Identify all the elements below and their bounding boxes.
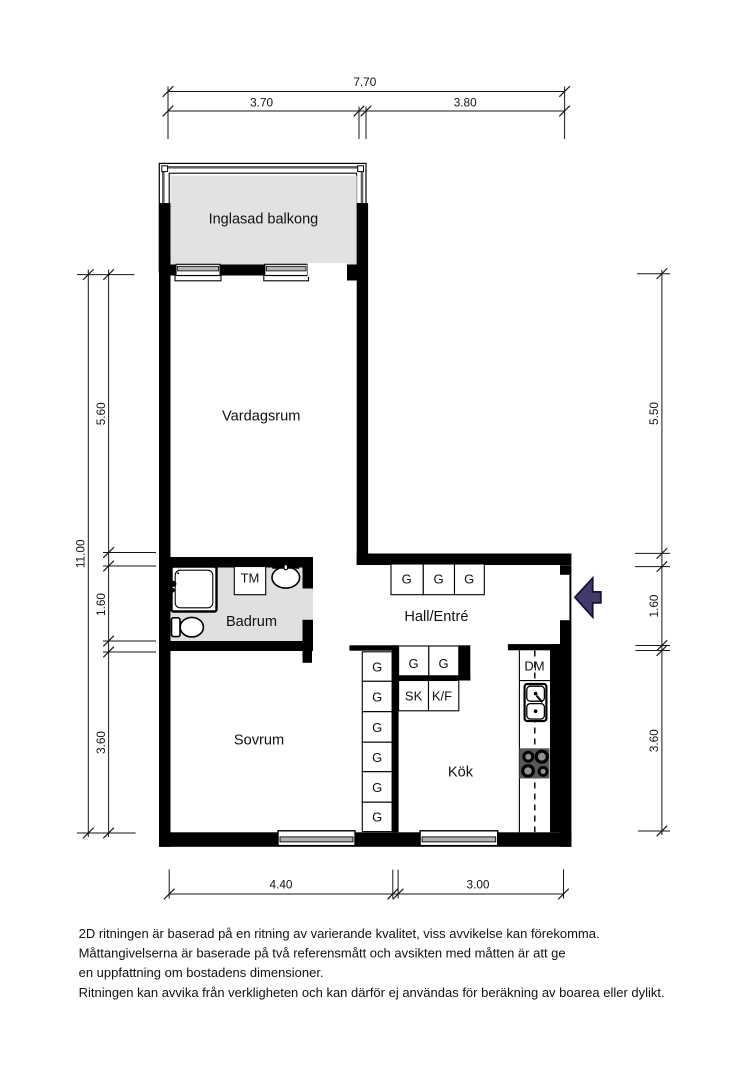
svg-text:Inglasad balkong: Inglasad balkong xyxy=(209,212,319,228)
svg-text:5.50: 5.50 xyxy=(647,402,661,425)
svg-text:3.00: 3.00 xyxy=(467,877,490,891)
svg-text:Badrum: Badrum xyxy=(226,614,277,630)
svg-text:Hall/Entré: Hall/Entré xyxy=(404,609,468,625)
svg-text:5.60: 5.60 xyxy=(94,402,108,425)
svg-text:G: G xyxy=(464,572,474,587)
svg-text:Vardagsrum: Vardagsrum xyxy=(222,408,300,424)
svg-text:G: G xyxy=(372,720,382,735)
svg-text:DM: DM xyxy=(524,658,544,673)
svg-text:3.70: 3.70 xyxy=(250,96,273,110)
svg-text:Kök: Kök xyxy=(448,765,474,781)
svg-text:G: G xyxy=(402,572,412,587)
svg-text:2D ritningen är baserad på en: 2D ritningen är baserad på en ritning av… xyxy=(79,926,600,941)
svg-text:G: G xyxy=(372,750,382,765)
svg-text:Ritningen kan avvika från verk: Ritningen kan avvika från verkligheten o… xyxy=(79,985,665,1000)
svg-text:G: G xyxy=(372,659,382,674)
svg-text:3.60: 3.60 xyxy=(647,729,661,752)
svg-text:G: G xyxy=(372,780,382,795)
svg-text:7.70: 7.70 xyxy=(353,75,376,89)
svg-text:Måttangivelserna är baserade p: Måttangivelserna är baserade på två refe… xyxy=(79,946,566,961)
svg-text:G: G xyxy=(439,656,449,671)
svg-text:en uppfattning om bostadens di: en uppfattning om bostadens dimensioner. xyxy=(79,965,324,980)
svg-text:4.40: 4.40 xyxy=(270,877,293,891)
svg-text:G: G xyxy=(372,810,382,825)
svg-text:1.60: 1.60 xyxy=(647,594,661,617)
svg-text:G: G xyxy=(433,572,443,587)
svg-text:G: G xyxy=(372,689,382,704)
svg-text:1.60: 1.60 xyxy=(94,593,108,616)
svg-text:11.00: 11.00 xyxy=(74,539,88,568)
svg-text:SK: SK xyxy=(405,688,423,703)
svg-text:K/F: K/F xyxy=(432,688,452,703)
svg-text:G: G xyxy=(409,656,419,671)
svg-text:Sovrum: Sovrum xyxy=(234,733,284,749)
svg-text:TM: TM xyxy=(241,570,260,585)
svg-text:3.80: 3.80 xyxy=(454,96,477,110)
svg-text:3.60: 3.60 xyxy=(94,731,108,754)
